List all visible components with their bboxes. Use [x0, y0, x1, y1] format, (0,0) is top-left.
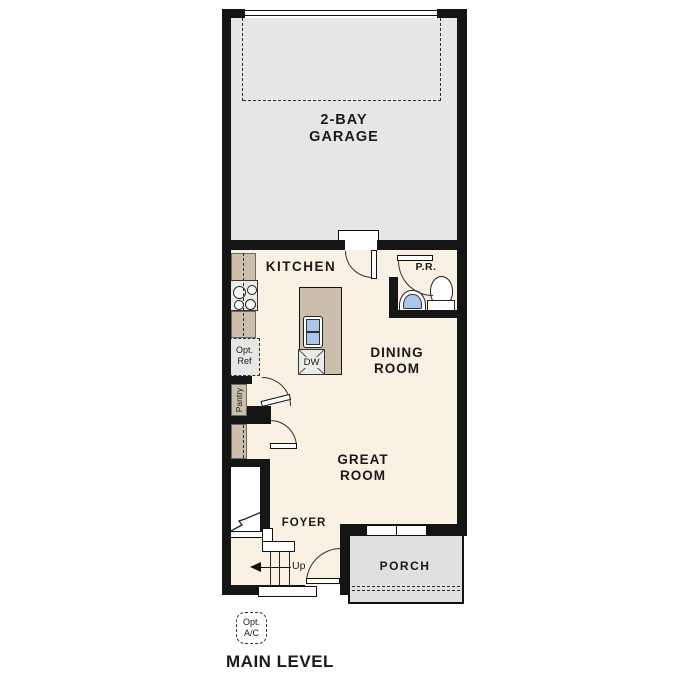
porch-dashed-line-1: [352, 586, 460, 588]
garage-label-line2: GARAGE: [294, 129, 394, 145]
garage-door-icon: [245, 10, 437, 16]
garage-entry-door-leaf: [371, 250, 377, 279]
dining-label-line2: ROOM: [352, 361, 442, 376]
great-room-label-line1: GREAT: [318, 452, 408, 467]
wall-top-corner-right: [437, 9, 467, 18]
garage-bay-dashed-right: [440, 18, 442, 101]
kitchen-sink-icon: [303, 316, 323, 348]
closet-centerline: [243, 425, 245, 458]
closet-door-leaf: [270, 443, 297, 449]
wall-stair-foyer: [260, 467, 270, 535]
wall-pr-left: [389, 277, 398, 313]
wall-right: [457, 9, 467, 536]
optional-refrigerator: Opt. Ref: [229, 338, 260, 376]
up-arrow-icon: [258, 567, 291, 569]
dishwasher-label: DW: [301, 357, 322, 368]
opt-ac-line1: Opt.: [237, 617, 266, 628]
porch-label: PORCH: [365, 560, 445, 573]
wall-left: [222, 9, 231, 595]
garage-bay-dashed-bottom: [243, 100, 441, 102]
dishwasher-icon: DW: [298, 349, 325, 375]
floor-plan: 2-BAY GARAGE Opt. Ref KITCHEN DW P.R. DI…: [0, 0, 687, 687]
porch-dashed-line-2: [352, 590, 460, 592]
wall-pr-bottom: [389, 310, 467, 318]
opt-ac-line2: A/C: [237, 628, 266, 639]
garage-bay-dashed-left: [242, 18, 244, 101]
wall-top-corner-left: [222, 9, 245, 18]
page-title: MAIN LEVEL: [226, 652, 334, 672]
stair-rail: [262, 541, 295, 552]
pantry-label: Pantry: [224, 385, 254, 415]
optional-ac-unit: Opt. A/C: [236, 612, 267, 644]
garage-entry-opening: [345, 240, 377, 250]
foyer-label: FOYER: [274, 517, 334, 530]
front-door-leaf: [306, 578, 340, 584]
wall-closet-bottom: [222, 459, 270, 467]
wall-pantry-top: [222, 376, 252, 384]
window-icon: [366, 525, 427, 536]
opt-ref-line1: Opt.: [230, 345, 259, 356]
opt-ref-line2: Ref: [230, 356, 259, 367]
dining-label-line1: DINING: [352, 345, 442, 360]
front-stoop: [258, 586, 317, 597]
wall-pantry-closet-divider: [222, 416, 249, 424]
up-arrow-head-icon: [250, 562, 261, 572]
powder-room-label: P.R.: [404, 262, 448, 274]
garage-label-line1: 2-BAY: [294, 112, 394, 128]
kitchen-label: KITCHEN: [255, 259, 347, 274]
stairs-up-label: Up: [292, 560, 305, 572]
great-room-label-line2: ROOM: [318, 468, 408, 483]
